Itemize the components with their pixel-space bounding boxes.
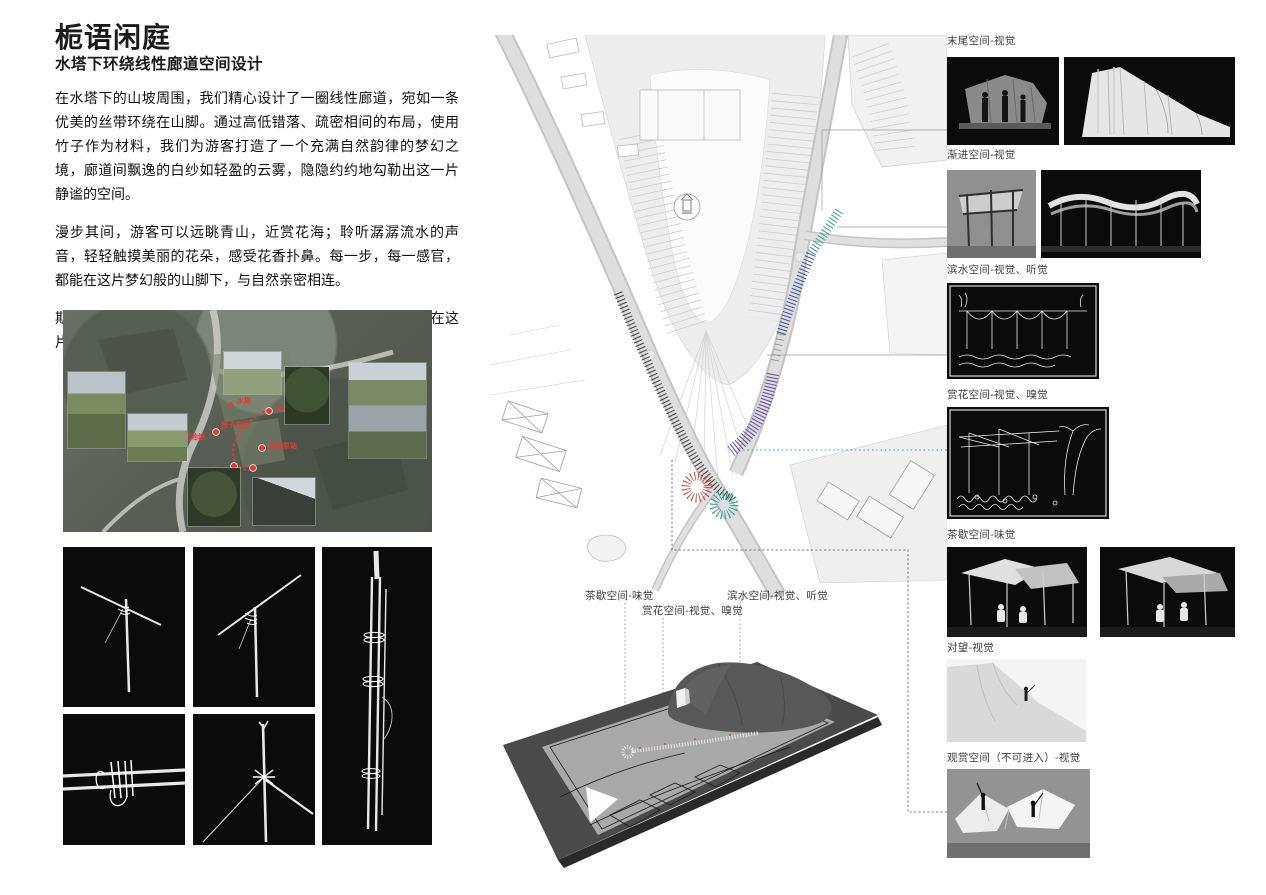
aerial-thumb-canal — [349, 363, 426, 458]
waterside-sketch — [959, 293, 1087, 367]
bamboo-joint-photo-4 — [63, 714, 185, 845]
model-photo-progressive-2 — [1041, 170, 1201, 258]
bamboo-sketch-4 — [63, 760, 185, 806]
map-pin-lotus-pond — [213, 429, 220, 436]
section-label-end-space: 末尾空间-视觉 — [947, 33, 1016, 48]
aerial-thumb-building — [224, 352, 281, 394]
bamboo-joint-photo-2 — [193, 547, 315, 707]
bamboo-joint-photo-1 — [63, 547, 185, 707]
intro-paragraph-2: 漫步其间，游客可以远眺青山，近赏花海；聆听潺潺流水的声音，轻轻触摸美丽的花朵，感… — [55, 220, 459, 292]
model-photo-end-space-2 — [1064, 57, 1235, 145]
bamboo-sketch-3 — [362, 551, 392, 831]
bamboo-sketch-2 — [218, 575, 301, 697]
sketch-frame — [950, 286, 1096, 376]
bamboo-joint-photo-3 — [322, 547, 432, 845]
page-subtitle: 水塔下环绕线性廊道空间设计 — [55, 52, 263, 74]
aerial-label-pump-station: 废弃泵站 — [269, 443, 297, 451]
section-label-viewing-space: 观赏空间（不可进入）-视觉 — [947, 750, 1080, 765]
sketch-frame-2 — [950, 410, 1106, 516]
model-label-flower-space: 赏花空间-视觉、嗅觉 — [642, 603, 743, 618]
intro-paragraph-1: 在水塔下的山坡周围，我们精心设计了一圈线性廊道，宛如一条优美的丝带环绕在山脚。通… — [55, 86, 459, 206]
slope-shape — [1082, 67, 1230, 137]
model-photo-tea-1 — [947, 547, 1087, 637]
page-title: 栀语闲庭 — [55, 16, 171, 56]
model-photo-tea-2 — [1100, 547, 1235, 637]
section-label-flower-space: 赏花空间-视觉、嗅觉 — [947, 387, 1048, 402]
tea-figures — [997, 604, 1027, 623]
site-plan — [490, 35, 947, 895]
map-pin-pump-station — [259, 445, 266, 452]
flower-sketch — [957, 425, 1101, 510]
hatched-sheds — [502, 401, 582, 508]
map-pin-big-tree — [266, 408, 273, 415]
sketch-photo-waterside — [947, 283, 1099, 379]
aerial-thumb-road-view — [68, 372, 125, 448]
aerial-label-water-tower: 水塔 — [237, 398, 251, 406]
aerial-label-gardenia-field: 栀子花田 — [221, 422, 249, 430]
pond — [588, 535, 626, 561]
map-pin-canal-2 — [250, 465, 257, 472]
section-label-facing-view: 对望-视觉 — [947, 640, 994, 655]
model-photo-facing-view — [947, 659, 1086, 742]
aerial-thumb-field-tent — [128, 414, 187, 461]
mountain-wedge — [947, 663, 1086, 742]
water-tower-icon — [674, 194, 700, 220]
tea-figures-2 — [1156, 602, 1188, 622]
model-water-tower — [676, 688, 686, 708]
model-photo-progressive-1 — [947, 170, 1036, 258]
bamboo-sketch-1 — [81, 587, 161, 692]
model-label-water-space: 滨水空间-视觉、听觉 — [727, 588, 828, 603]
model-photo-end-space-1 — [947, 57, 1059, 145]
bamboo-joint-photo-5 — [193, 714, 315, 845]
model-label-tea-space: 茶歇空间-味觉 — [585, 588, 654, 603]
bamboo-sketch-5 — [203, 721, 313, 842]
section-label-progressive-space: 渐进空间-视觉 — [947, 147, 1016, 162]
site-model-axon — [503, 662, 882, 868]
model-photo-viewing-space — [947, 769, 1090, 858]
presentation-board: 栀语闲庭 水塔下环绕线性廊道空间设计 在水塔下的山坡周围，我们精心设计了一圈线性… — [0, 0, 1266, 895]
aerial-site-collage: 水塔 大树 栀子花田 荷花池塘 废弃泵站 大水渠 — [63, 310, 432, 532]
sketch-photo-flower — [947, 407, 1109, 519]
section-label-waterside-space: 滨水空间-视觉、听觉 — [947, 262, 1048, 277]
section-label-tea-space: 茶歇空间-味觉 — [947, 527, 1016, 542]
aerial-thumb-big-tree — [188, 468, 240, 526]
aerial-thumb-trees — [285, 367, 329, 424]
aerial-thumb-old-house — [253, 478, 315, 525]
